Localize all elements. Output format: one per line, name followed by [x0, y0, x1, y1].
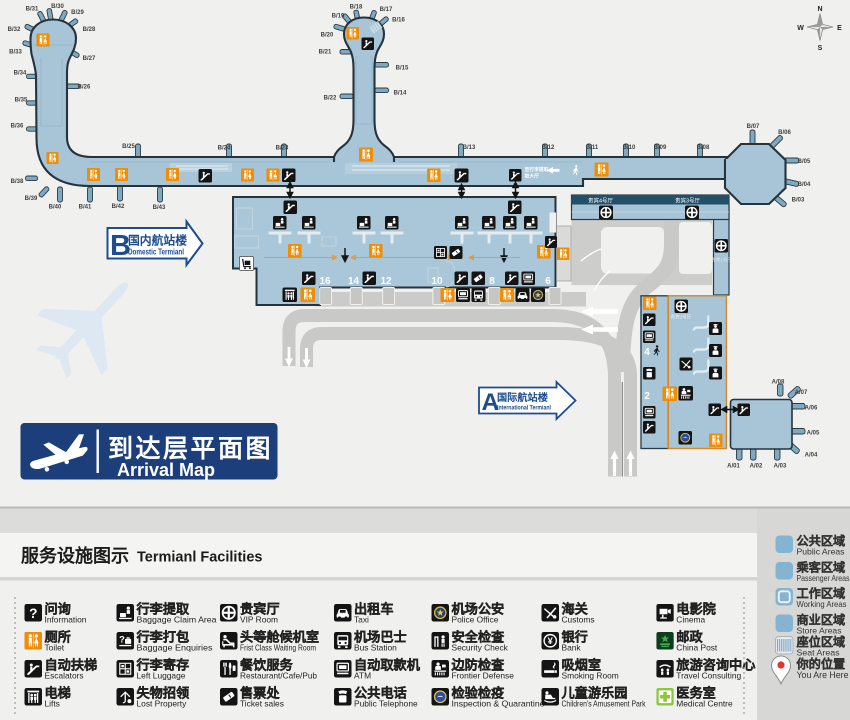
svg-text:Public Telephone: Public Telephone [354, 699, 418, 709]
svg-text:Escalators: Escalators [45, 671, 84, 681]
svg-text:B/24: B/24 [218, 146, 231, 152]
svg-text:B/29: B/29 [71, 10, 84, 16]
svg-text:贵宾3号厅: 贵宾3号厅 [675, 196, 701, 204]
svg-text:VIP Room: VIP Room [240, 615, 278, 625]
svg-text:Information: Information [45, 615, 87, 625]
svg-text:贵宾1号厅: 贵宾1号厅 [711, 257, 732, 264]
svg-text:B/43: B/43 [153, 205, 166, 211]
svg-text:B/10: B/10 [623, 145, 636, 151]
svg-text:B/38: B/38 [11, 179, 24, 185]
svg-text:B/07: B/07 [747, 124, 760, 130]
svg-text:Lifts: Lifts [45, 699, 60, 709]
svg-text:B/26: B/26 [78, 85, 91, 91]
svg-text:10: 10 [431, 276, 443, 287]
svg-text:A/03: A/03 [774, 464, 787, 470]
svg-text:Domestic Termianl: Domestic Termianl [128, 247, 184, 257]
svg-text:你的位置: 你的位置 [796, 656, 846, 671]
svg-text:Bus Station: Bus Station [354, 643, 397, 653]
svg-text:W: W [797, 25, 804, 32]
svg-text:B/41: B/41 [79, 205, 92, 211]
svg-text:B/13: B/13 [463, 145, 476, 151]
svg-text:到达层平面图: 到达层平面图 [108, 435, 273, 463]
svg-text:国内航站楼: 国内航站楼 [128, 234, 187, 248]
svg-text:You Are Here: You Are Here [797, 670, 849, 680]
svg-text:2: 2 [644, 391, 650, 402]
svg-text:B/04: B/04 [798, 182, 811, 188]
svg-text:B/39: B/39 [25, 196, 38, 202]
svg-text:Medical Centre: Medical Centre [676, 699, 733, 709]
svg-text:服务设施图示: 服务设施图示 [21, 545, 129, 566]
svg-text:B/12: B/12 [542, 145, 555, 151]
svg-text:取大厅: 取大厅 [525, 173, 540, 180]
svg-text:Baggage Claim Area: Baggage Claim Area [137, 615, 217, 625]
svg-text:贵宾2号厅: 贵宾2号厅 [671, 314, 692, 321]
svg-text:14: 14 [348, 276, 360, 287]
svg-text:Baggage Enquiries: Baggage Enquiries [137, 643, 213, 653]
svg-text:Cinema: Cinema [676, 615, 705, 625]
svg-text:Store Areas: Store Areas [797, 625, 842, 635]
svg-text:B/15: B/15 [396, 66, 409, 72]
svg-text:Restaurant/Cafe/Pub: Restaurant/Cafe/Pub [240, 671, 317, 681]
svg-text:B/20: B/20 [321, 33, 334, 39]
svg-text:B/35: B/35 [15, 98, 28, 104]
svg-text:国际航站楼: 国际航站楼 [497, 391, 549, 404]
svg-text:Smoking Room: Smoking Room [562, 671, 619, 681]
svg-text:Public Areas: Public Areas [797, 546, 845, 556]
svg-text:E: E [837, 25, 842, 32]
svg-text:A/02: A/02 [750, 464, 763, 470]
svg-text:China Post: China Post [676, 643, 718, 653]
svg-text:B/25: B/25 [122, 144, 135, 150]
svg-text:B/19: B/19 [332, 14, 345, 20]
svg-text:B/34: B/34 [14, 71, 27, 77]
svg-text:16: 16 [319, 276, 331, 287]
svg-text:8: 8 [489, 276, 495, 287]
svg-text:Taxi: Taxi [354, 615, 369, 625]
svg-text:B/06: B/06 [778, 130, 791, 136]
svg-text:B/17: B/17 [380, 7, 393, 13]
svg-text:Travel Consulting: Travel Consulting [676, 671, 741, 681]
svg-text:A/04: A/04 [805, 453, 818, 459]
svg-text:Arrival Map: Arrival Map [117, 460, 215, 480]
svg-text:B/33: B/33 [9, 50, 22, 56]
svg-text:International Termianl: International Termianl [497, 405, 551, 412]
svg-text:B/21: B/21 [319, 50, 332, 56]
svg-text:12: 12 [380, 276, 392, 287]
svg-text:B/05: B/05 [798, 159, 811, 165]
svg-text:Frontier Defense: Frontier Defense [452, 671, 515, 681]
svg-text:贵宾4号厅: 贵宾4号厅 [588, 196, 614, 204]
svg-text:B/28: B/28 [83, 27, 96, 33]
svg-text:B/11: B/11 [586, 145, 599, 151]
svg-text:Passenger Areas: Passenger Areas [797, 573, 850, 583]
svg-text:Ticket sales: Ticket sales [240, 699, 284, 709]
svg-text:Frist Class Waiting Room: Frist Class Waiting Room [240, 643, 316, 653]
svg-text:Customs: Customs [562, 615, 595, 625]
svg-text:B/23: B/23 [276, 146, 289, 152]
svg-text:B/42: B/42 [112, 204, 125, 210]
svg-text:B/36: B/36 [11, 124, 24, 130]
svg-text:B/22: B/22 [324, 96, 337, 102]
svg-text:Bank: Bank [562, 643, 582, 653]
svg-text:B/32: B/32 [8, 27, 21, 33]
svg-text:6: 6 [545, 276, 551, 287]
svg-text:S: S [818, 45, 823, 52]
svg-text:B/16: B/16 [392, 18, 405, 24]
svg-text:B/31: B/31 [26, 7, 39, 13]
svg-text:Inspection & Quarantine: Inspection & Quarantine [452, 699, 545, 709]
svg-text:Lost Property: Lost Property [137, 699, 188, 709]
svg-text:A/06: A/06 [805, 406, 818, 412]
svg-text:Left Luggage: Left Luggage [137, 671, 186, 681]
svg-text:B/03: B/03 [792, 198, 805, 204]
svg-text:Children's Amusement Park: Children's Amusement Park [562, 699, 647, 709]
svg-text:Seat Areas: Seat Areas [797, 647, 840, 657]
svg-text:B/18: B/18 [350, 5, 363, 11]
svg-text:Police Office: Police Office [452, 615, 499, 625]
svg-text:B/14: B/14 [394, 91, 407, 97]
svg-text:A/07: A/07 [795, 390, 808, 396]
svg-text:A/01: A/01 [727, 464, 740, 470]
svg-text:Working Areas: Working Areas [797, 599, 847, 609]
svg-text:Security Check: Security Check [452, 643, 509, 653]
svg-text:B/30: B/30 [51, 4, 64, 10]
svg-text:B/27: B/27 [83, 56, 96, 62]
svg-text:4: 4 [644, 347, 650, 358]
svg-text:Termianl Facilities: Termianl Facilities [137, 550, 262, 566]
svg-text:B/40: B/40 [49, 205, 62, 211]
svg-text:B/09: B/09 [654, 145, 667, 151]
svg-text:至行李提取: 至行李提取 [525, 166, 549, 173]
svg-text:A/08: A/08 [772, 380, 785, 386]
svg-text:ATM: ATM [354, 671, 371, 681]
svg-text:N: N [817, 6, 822, 13]
svg-text:A/05: A/05 [807, 431, 820, 437]
svg-text:B/08: B/08 [697, 145, 710, 151]
svg-text:Toilet: Toilet [45, 643, 65, 653]
